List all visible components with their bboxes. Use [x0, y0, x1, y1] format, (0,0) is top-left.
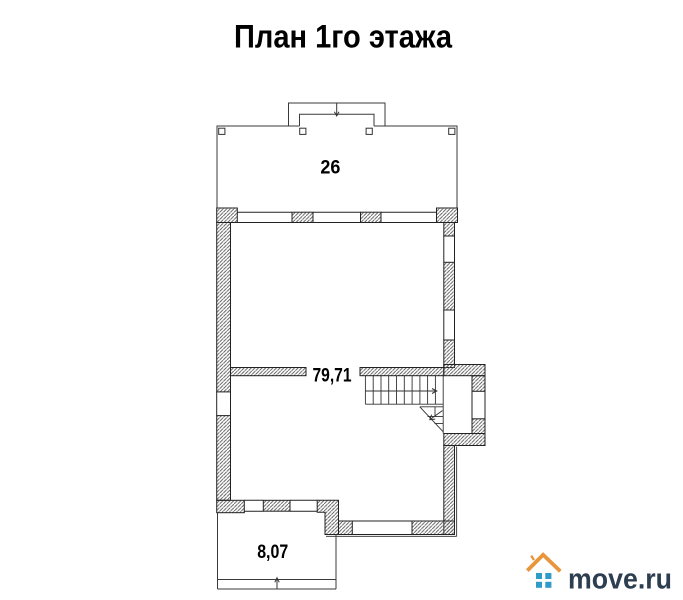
- svg-text:79,71: 79,71: [313, 366, 352, 387]
- svg-text:move.ru: move.ru: [568, 564, 672, 596]
- svg-text:26: 26: [320, 158, 340, 179]
- svg-text:8,07: 8,07: [257, 542, 288, 563]
- svg-text:План 1го этажа: План 1го этажа: [234, 18, 452, 54]
